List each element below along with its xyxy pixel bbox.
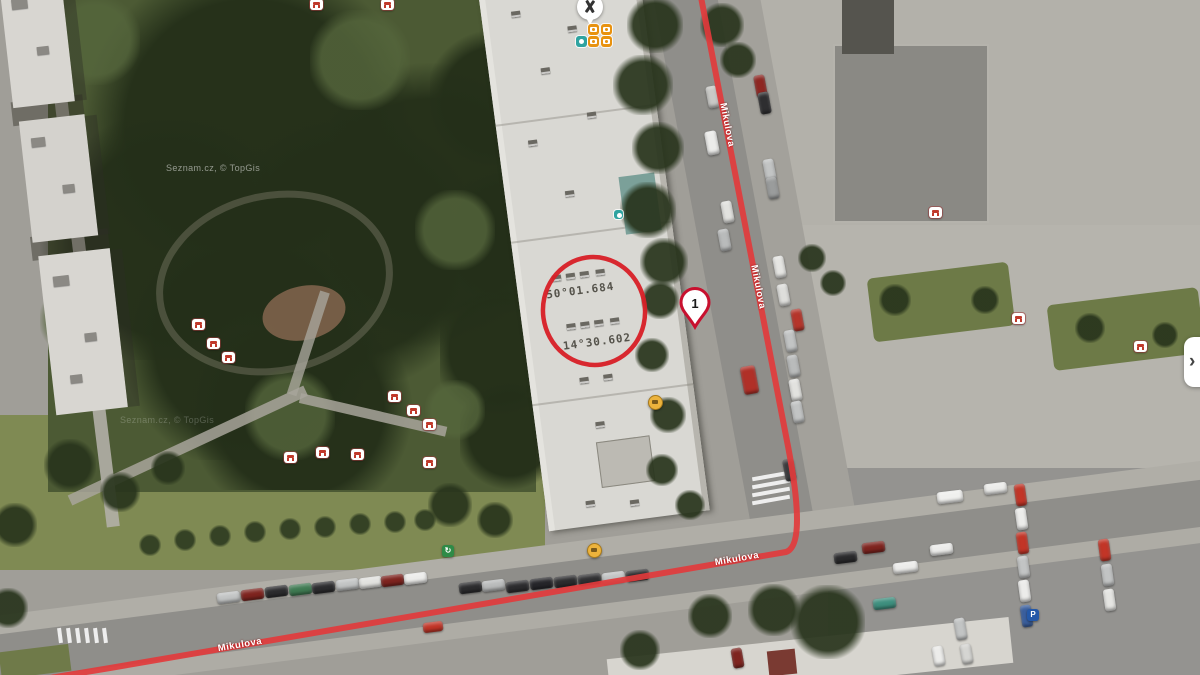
tree bbox=[640, 238, 688, 286]
bench-icon[interactable] bbox=[381, 0, 394, 10]
parked-car bbox=[335, 577, 359, 591]
route-marker-1[interactable]: 1 bbox=[681, 289, 709, 328]
parked-car bbox=[505, 579, 529, 593]
parked-car bbox=[458, 580, 482, 594]
tree bbox=[477, 502, 513, 538]
tree bbox=[151, 451, 185, 485]
parked-car bbox=[311, 580, 335, 594]
bench-icon[interactable] bbox=[388, 391, 401, 402]
recycling-icon[interactable]: ↻ bbox=[442, 545, 454, 557]
bench-icon[interactable] bbox=[407, 405, 420, 416]
tree bbox=[1152, 322, 1178, 348]
parked-car bbox=[1102, 588, 1116, 611]
parked-car bbox=[872, 596, 896, 610]
parked-car bbox=[929, 542, 953, 556]
hedge bbox=[279, 518, 301, 540]
yellow-poi-icon[interactable] bbox=[587, 543, 602, 558]
aerial-map-canvas[interactable]: 50°01.684 14°30.602 1 Mikulova Mikulova … bbox=[0, 0, 1200, 675]
yellow-poi-icon[interactable] bbox=[648, 395, 663, 410]
hedge bbox=[244, 521, 266, 543]
bench-icon[interactable] bbox=[222, 352, 235, 363]
parked-car bbox=[380, 573, 404, 587]
roof-painted-coordinate-2: 14°30.602 bbox=[562, 331, 632, 353]
camera-icon[interactable] bbox=[601, 24, 612, 35]
asphalt-lot bbox=[833, 44, 989, 223]
teal-poi-icon[interactable] bbox=[614, 210, 623, 219]
bench-icon[interactable] bbox=[423, 457, 436, 468]
hedge bbox=[174, 529, 196, 551]
tree bbox=[646, 454, 678, 486]
tree bbox=[971, 286, 999, 314]
camera-icon[interactable] bbox=[588, 36, 599, 47]
parked-car bbox=[1016, 555, 1030, 578]
tree bbox=[791, 585, 865, 659]
tree bbox=[641, 281, 679, 319]
parked-car bbox=[216, 590, 240, 604]
hedge bbox=[209, 525, 231, 547]
tree bbox=[100, 472, 140, 512]
camera-icon[interactable] bbox=[588, 24, 599, 35]
bench-icon[interactable] bbox=[284, 452, 297, 463]
tree bbox=[1075, 313, 1105, 343]
map-attribution-watermark: Seznam.cz, © TopGis bbox=[120, 415, 214, 425]
tree bbox=[632, 122, 684, 174]
tree bbox=[613, 55, 673, 115]
bench-icon[interactable] bbox=[929, 207, 942, 218]
bench-icon[interactable] bbox=[310, 0, 323, 10]
parked-car bbox=[625, 568, 649, 582]
tree bbox=[620, 630, 660, 670]
tree bbox=[820, 270, 846, 296]
hedge bbox=[384, 511, 406, 533]
tree bbox=[620, 182, 676, 238]
parked-car bbox=[481, 578, 505, 592]
tree bbox=[627, 0, 683, 53]
route-marker-label: 1 bbox=[691, 296, 698, 311]
map-attribution-watermark: Seznam.cz, © TopGis bbox=[166, 163, 260, 173]
parked-car bbox=[1014, 507, 1028, 530]
tree bbox=[0, 503, 37, 547]
tree bbox=[0, 588, 28, 628]
bench-icon[interactable] bbox=[351, 449, 364, 460]
bench-icon[interactable] bbox=[1134, 341, 1147, 352]
camera-icon[interactable] bbox=[601, 36, 612, 47]
parked-car bbox=[577, 572, 601, 586]
parked-car bbox=[1100, 563, 1114, 586]
parked-car bbox=[1013, 483, 1027, 506]
bench-icon[interactable] bbox=[207, 338, 220, 349]
parked-car bbox=[1017, 579, 1031, 602]
parked-car bbox=[529, 576, 553, 590]
tree bbox=[675, 490, 705, 520]
tree bbox=[720, 42, 756, 78]
bench-icon[interactable] bbox=[423, 419, 436, 430]
parked-car bbox=[1097, 538, 1111, 561]
parked-car bbox=[601, 570, 625, 584]
building-top-right bbox=[842, 0, 894, 54]
bench-icon[interactable] bbox=[192, 319, 205, 330]
hedge bbox=[414, 509, 436, 531]
parked-car bbox=[1015, 531, 1029, 554]
tree bbox=[700, 3, 744, 47]
parked-car bbox=[288, 582, 312, 596]
tree bbox=[688, 594, 732, 638]
tree bbox=[798, 244, 826, 272]
tree bbox=[879, 284, 911, 316]
tree-canopy bbox=[415, 190, 495, 270]
bench-icon[interactable] bbox=[316, 447, 329, 458]
parked-car bbox=[861, 540, 885, 554]
bench-icon[interactable] bbox=[1012, 313, 1025, 324]
parked-car bbox=[264, 584, 288, 598]
roof-painted-coordinate-1: 50°01.684 bbox=[545, 280, 615, 302]
parked-car bbox=[403, 571, 427, 585]
chevron-right-icon: › bbox=[1189, 351, 1195, 373]
side-panel-toggle[interactable]: › bbox=[1184, 337, 1200, 387]
parked-car bbox=[833, 550, 857, 564]
tree bbox=[44, 439, 96, 491]
hedge bbox=[349, 513, 371, 535]
parked-car bbox=[240, 587, 264, 601]
parking-sign-icon[interactable]: P bbox=[1027, 609, 1039, 621]
tree-canopy bbox=[310, 10, 410, 110]
parked-car bbox=[983, 481, 1007, 495]
parked-car bbox=[892, 560, 918, 574]
hedge bbox=[314, 516, 336, 538]
hedge bbox=[139, 534, 161, 556]
parked-car bbox=[553, 574, 577, 588]
teal-poi-icon[interactable] bbox=[576, 36, 587, 47]
parked-car bbox=[358, 575, 382, 589]
tree bbox=[635, 338, 669, 372]
